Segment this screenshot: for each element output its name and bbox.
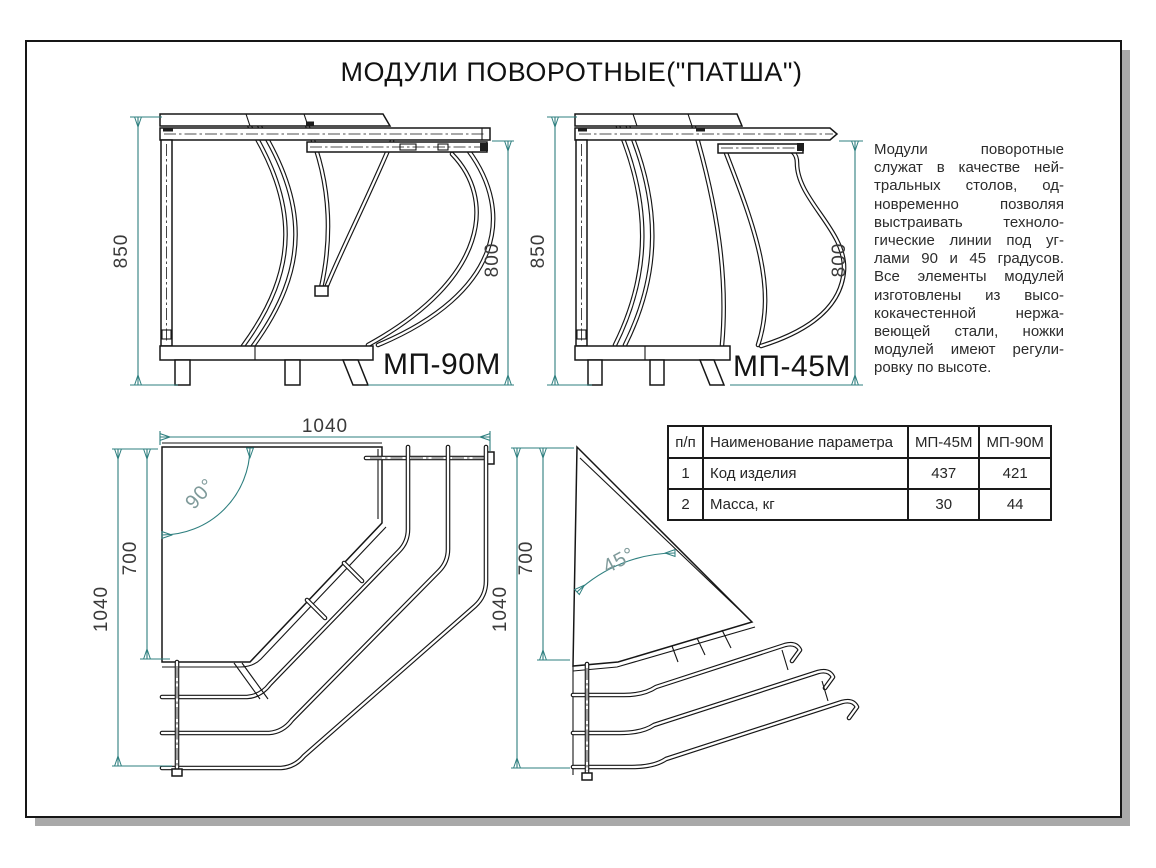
description-line: Все элементы модулей: [874, 268, 1064, 286]
dimension-label-850: 850: [528, 234, 549, 269]
mp90m-curved-legs: [243, 122, 493, 346]
page: { "title": "МОДУЛИ ПОВОРОТНЫЕ(\"ПАТША\")…: [0, 0, 1156, 868]
mp90m-countertop: [160, 114, 490, 140]
description-line: веющей стали, ножки: [874, 323, 1064, 341]
dimension-label-1040: 1040: [490, 586, 511, 632]
table-row: 1 Код изделия 437 421: [668, 458, 1051, 489]
description-line: изготовлены из высо-: [874, 287, 1064, 305]
mp90m-base-and-legs: [160, 346, 373, 385]
table-cell: Масса, кг: [703, 489, 908, 520]
dimension-label-700: 700: [516, 541, 537, 576]
mp45m-curved-legs: [615, 124, 844, 346]
dimension-label-800: 800: [482, 243, 503, 278]
description-line: новременно позволяя: [874, 196, 1064, 214]
dimension-label-800: 800: [829, 243, 850, 278]
table-cell: 421: [979, 458, 1050, 489]
page-title: МОДУЛИ ПОВОРОТНЫЕ("ПАТША"): [25, 57, 1118, 88]
table-cell: 437: [908, 458, 979, 489]
description-line: Модули поворотные: [874, 141, 1064, 159]
mp90m-left-post: [161, 140, 172, 346]
top45-rails: [573, 644, 857, 780]
description-line: гические линии под уг-: [874, 232, 1064, 250]
top90-surface: [162, 443, 386, 667]
description-line: ровку по высоте.: [874, 359, 1064, 377]
side-view-mp45m-drawing: 850 800 МП-45М: [530, 108, 880, 398]
table-cell: 2: [668, 489, 703, 520]
table-header-cell: п/п: [668, 426, 703, 458]
spec-table-header-row: п/п Наименование параметра МП-45М МП-90М: [668, 426, 1051, 458]
view-label-mp45m: МП-45М: [733, 350, 851, 383]
table-header-cell: МП-45М: [908, 426, 979, 458]
description-line: тральных столов, од-: [874, 177, 1064, 195]
dimension-label-1040-left: 1040: [91, 586, 112, 632]
description-line: кокачестенной нержа-: [874, 305, 1064, 323]
description-line: модулей имеют регули-: [874, 341, 1064, 359]
mp45m-base-and-legs: [575, 346, 730, 385]
description-line: служат в качестве ней-: [874, 159, 1064, 177]
table-header-cell: МП-90М: [979, 426, 1050, 458]
dimension-label-700: 700: [120, 541, 141, 576]
mp45m-countertop: [575, 114, 837, 140]
leg-foot: [315, 286, 328, 296]
dimension-label-1040-top: 1040: [302, 416, 348, 437]
top-view-90-drawing: 1040 1040 700 90°: [92, 413, 552, 808]
side-view-mp90m-drawing: 850 800 МП-90М: [100, 108, 520, 398]
description-text: Модули поворотные служат в качестве ней-…: [874, 141, 1064, 378]
description-line: выстраивать техноло-: [874, 214, 1064, 232]
mp45m-lower-shelf: [718, 143, 804, 153]
mp90m-lower-shelf: [307, 142, 488, 152]
table-cell: 44: [979, 489, 1050, 520]
table-header-cell: Наименование параметра: [703, 426, 908, 458]
spec-table: п/п Наименование параметра МП-45М МП-90М…: [667, 425, 1052, 521]
table-cell: 30: [908, 489, 979, 520]
table-cell: Код изделия: [703, 458, 908, 489]
table-row: 2 Масса, кг 30 44: [668, 489, 1051, 520]
mp45m-left-post: [576, 140, 587, 346]
description-line: лами 90 и 45 градусов.: [874, 250, 1064, 268]
dimension-label-850: 850: [111, 234, 132, 269]
table-cell: 1: [668, 458, 703, 489]
view-label-mp90m: МП-90М: [383, 348, 501, 381]
